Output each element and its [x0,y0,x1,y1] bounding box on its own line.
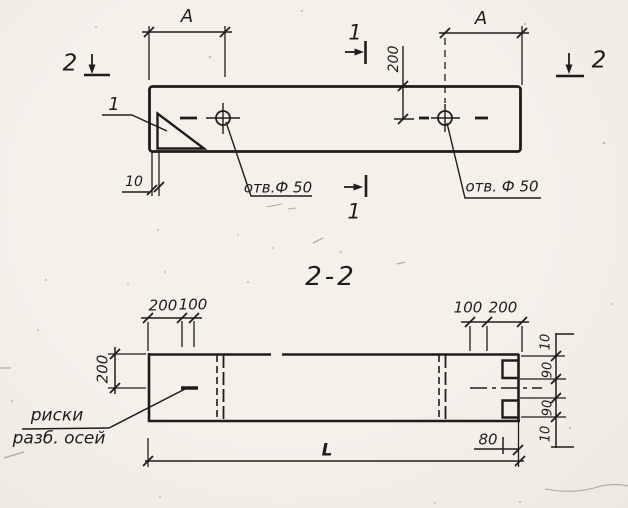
dim-label-10-plan: 10 [125,175,143,189]
cut-label-1-top: 1 [348,23,361,44]
section-title: 2-2 [305,264,356,290]
risk-label-line2: разб. осей [13,431,106,448]
dim-label-l: L [322,443,333,460]
dim-label-200-top-left: 200 [149,299,178,314]
dim-label-200-top-right: 200 [489,301,518,316]
dim-200-side-lines [108,347,146,394]
hole-left [180,103,240,134]
hole-callout-right: отв. Ф 50 [465,180,538,195]
dim-label-200-plan: 200 [387,46,401,73]
cut-label-1-bottom: 1 [347,202,360,223]
detail-label-1: 1 [108,96,119,114]
dim-label-a-right: А [475,10,487,28]
chain-label-90-upper: 90 [542,362,555,379]
plan-view [84,26,584,198]
drawing-sheet: А А 2 2 1 1 1 200 10 отв.Ф 50 отв. Ф 50 … [0,0,628,508]
dim-label-80: 80 [478,433,497,448]
cut-mark-1-bottom [344,175,366,197]
hole-callout-left: отв.Ф 50 [244,181,312,196]
dim-a-right-lines [439,26,529,103]
dims-top-left-lines [141,313,202,351]
joint-lines-left [217,355,224,420]
dims-top-right-lines [461,317,529,352]
section-beam-outline [148,353,520,422]
dim-a-left-lines [142,26,232,80]
joint-lines-right [439,355,446,420]
chain-label-90-lower: 90 [542,400,555,417]
risk-label-line1: риски [31,408,84,425]
notch-upper [503,361,519,379]
dim-label-100-top-left: 100 [179,298,208,313]
dim-label-a-left: А [181,8,193,26]
notch-lower [503,401,519,418]
cut-label-2-right: 2 [592,50,607,73]
dim-label-100-top-right: 100 [454,301,483,316]
dim-l-lines [143,422,525,467]
cut-mark-2-right [556,53,584,76]
chain-label-10-top: 10 [540,334,553,351]
cut-label-2-left: 2 [63,53,78,76]
cut-mark-2-left [84,54,110,75]
plan-beam-outline [150,87,521,152]
chain-label-10-bottom: 10 [540,426,553,443]
dim-label-200-side: 200 [96,355,111,384]
hole-right [419,104,488,132]
